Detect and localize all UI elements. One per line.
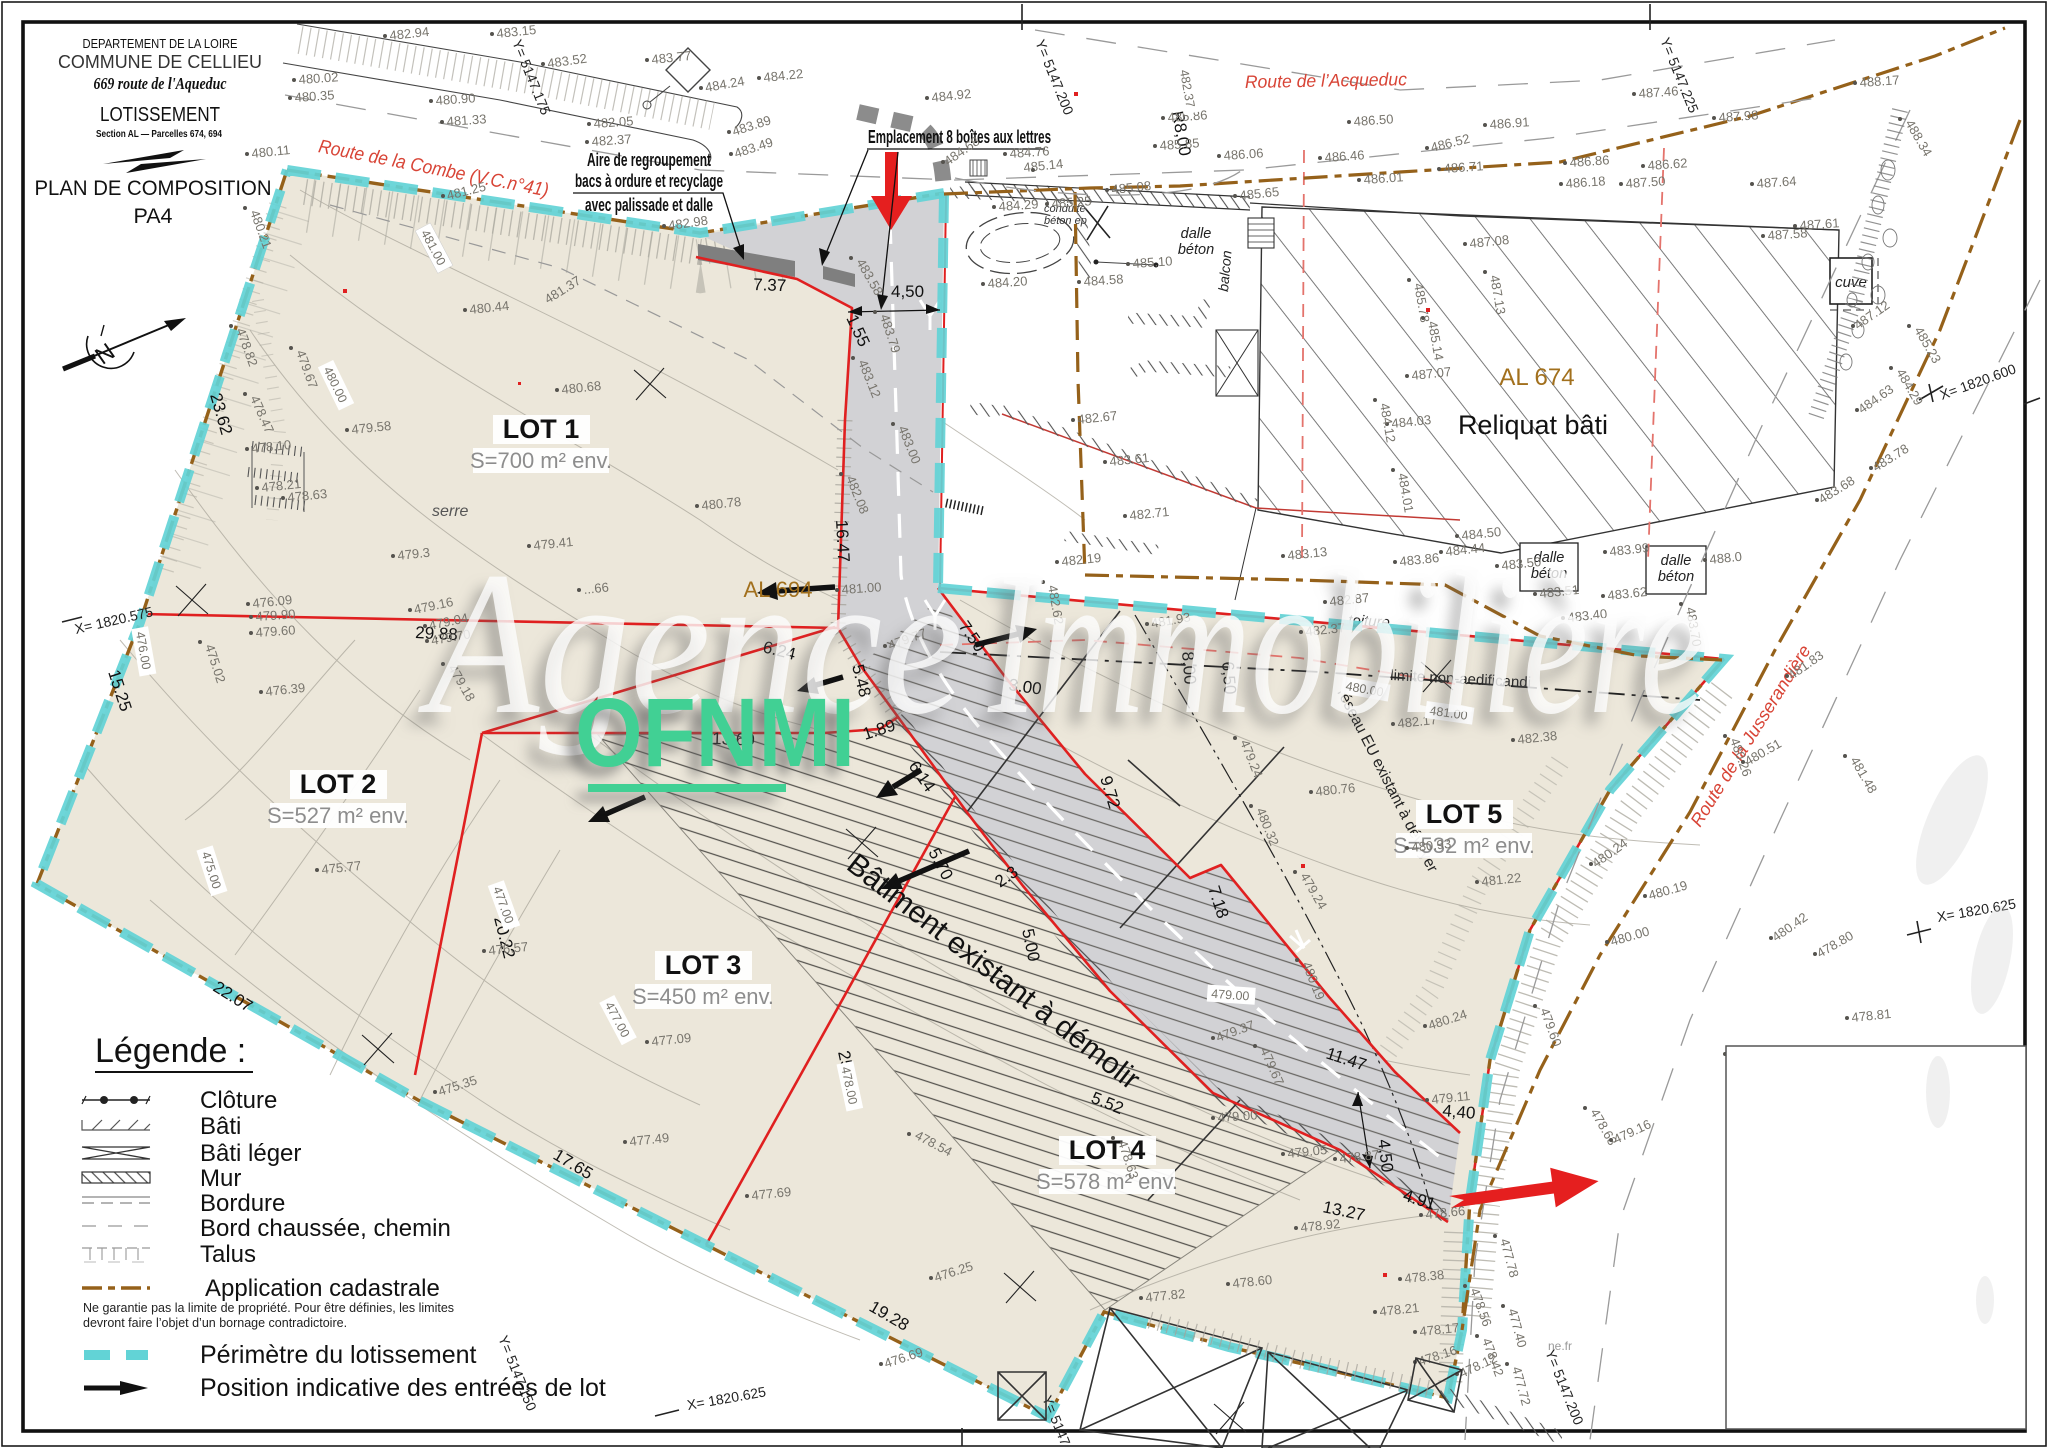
svg-text:485.10: 485.10 xyxy=(1132,253,1173,271)
svg-text:Bâti léger: Bâti léger xyxy=(200,1140,301,1167)
svg-text:479.60: 479.60 xyxy=(255,622,296,640)
svg-text:485.85: 485.85 xyxy=(1159,135,1200,153)
svg-text:485.25: 485.25 xyxy=(1051,193,1092,211)
svg-text:487.46: 487.46 xyxy=(1638,83,1679,101)
svg-text:devront faire l’objet d’un: devront faire l’objet d’un bornage contr… xyxy=(83,1316,347,1330)
svg-text:484.29: 484.29 xyxy=(998,196,1039,214)
svg-text:PA4: PA4 xyxy=(133,204,172,228)
svg-text:LOT 2: LOT 2 xyxy=(300,769,377,799)
svg-text:487.50: 487.50 xyxy=(1625,173,1666,191)
svg-text:Section AL — Parcelles 674: Section AL — Parcelles 674, 694 xyxy=(96,129,222,140)
svg-text:486.50: 486.50 xyxy=(1353,111,1394,129)
svg-text:avec palissade et dalle: avec palissade et dalle xyxy=(585,195,713,215)
svg-text:ne.fr: ne.fr xyxy=(1548,1339,1572,1353)
svg-text:Périmètre du lotissement: Périmètre du lotissement xyxy=(200,1341,477,1369)
svg-text:480.90: 480.90 xyxy=(435,90,476,108)
svg-text:486.86: 486.86 xyxy=(1569,152,1610,170)
svg-text:AL 674: AL 674 xyxy=(1499,364,1574,391)
svg-text:LOTISSEMENT: LOTISSEMENT xyxy=(100,104,220,126)
svg-text:COMMUNE DE CELLIEU: COMMUNE DE CELLIEU xyxy=(58,51,262,72)
svg-text:482.05: 482.05 xyxy=(593,113,634,131)
svg-text:dalle: dalle xyxy=(1181,226,1212,242)
svg-text:488.17: 488.17 xyxy=(1859,72,1900,90)
svg-text:S=527 m² env.: S=527 m² env. xyxy=(267,803,409,828)
svg-text:S=450 m² env.: S=450 m² env. xyxy=(632,984,774,1009)
svg-text:Application cadastrale: Application cadastrale xyxy=(205,1275,440,1302)
svg-text:S=700 m² env.: S=700 m² env. xyxy=(470,448,612,473)
svg-text:serre: serre xyxy=(432,503,469,520)
svg-text:S=578 m² env.: S=578 m² env. xyxy=(1036,1169,1178,1194)
svg-text:Mur: Mur xyxy=(200,1165,241,1192)
svg-text:486.71: 486.71 xyxy=(1443,158,1484,176)
svg-text:487.98: 487.98 xyxy=(1718,107,1759,125)
svg-text:LOT 3: LOT 3 xyxy=(665,950,742,980)
svg-text:Bord chaussée, chemin: Bord chaussée, chemin xyxy=(200,1215,451,1242)
svg-text:Route de l’Acqueduc: Route de l’Acqueduc xyxy=(1245,69,1407,92)
svg-text:486.18: 486.18 xyxy=(1565,173,1606,191)
svg-text:PLAN DE COMPOSITION: PLAN DE COMPOSITION xyxy=(35,176,272,200)
svg-text:DEPARTEMENT DE LA LOIRE: DEPARTEMENT DE LA LOIRE xyxy=(83,37,238,51)
svg-text:482.37: 482.37 xyxy=(591,131,632,149)
svg-text:487.58: 487.58 xyxy=(1767,225,1808,243)
svg-text:Bâti: Bâti xyxy=(200,1113,241,1140)
svg-text:Ne garantie pas la limite: Ne garantie pas la limite de propriété. … xyxy=(83,1301,454,1315)
svg-text:484.58: 484.58 xyxy=(1083,271,1124,289)
svg-text:481.33: 481.33 xyxy=(446,111,487,129)
svg-text:Reliquat bâti: Reliquat bâti xyxy=(1458,410,1608,440)
svg-text:Immobilière: Immobilière xyxy=(987,530,1706,757)
svg-text:479.90: 479.90 xyxy=(255,606,296,624)
svg-text:Position indicative des entrée: Position indicative des entrées de lot xyxy=(200,1374,606,1402)
svg-text:480.35: 480.35 xyxy=(294,87,335,105)
svg-text:484.20: 484.20 xyxy=(987,273,1028,291)
svg-text:7.37: 7.37 xyxy=(753,275,787,295)
svg-text:480.02: 480.02 xyxy=(298,69,339,87)
svg-text:LOT 1: LOT 1 xyxy=(503,414,580,444)
svg-text:Bordure: Bordure xyxy=(200,1190,285,1217)
svg-text:béton: béton xyxy=(1178,242,1214,258)
svg-text:479.00: 479.00 xyxy=(1211,987,1250,1004)
svg-text:cuve: cuve xyxy=(1835,274,1867,291)
svg-text:4,50: 4,50 xyxy=(891,282,924,301)
svg-text:486.46: 486.46 xyxy=(1324,147,1365,165)
svg-text:Clôture: Clôture xyxy=(200,1087,277,1114)
svg-text:Talus: Talus xyxy=(200,1241,256,1268)
svg-text:Aire de regroupement: Aire de regroupement xyxy=(587,150,711,170)
svg-text:486.01: 486.01 xyxy=(1363,169,1404,187)
svg-text:479.00: 479.00 xyxy=(1217,1107,1258,1125)
svg-text:669 route de l'Aqueduc: 669 route de l'Aqueduc xyxy=(94,74,228,93)
svg-text:bacs à ordure et recyclage: bacs à ordure et recyclage xyxy=(575,171,723,191)
svg-text:LOT 5: LOT 5 xyxy=(1426,799,1503,829)
svg-text:486.91: 486.91 xyxy=(1489,114,1530,132)
svg-text:487.64: 487.64 xyxy=(1756,173,1797,191)
svg-text:OFNMI: OFNMI xyxy=(575,678,855,787)
svg-text:486.06: 486.06 xyxy=(1223,145,1264,163)
svg-text:Légende :: Légende : xyxy=(95,1032,246,1070)
svg-text:486.62: 486.62 xyxy=(1647,155,1688,173)
